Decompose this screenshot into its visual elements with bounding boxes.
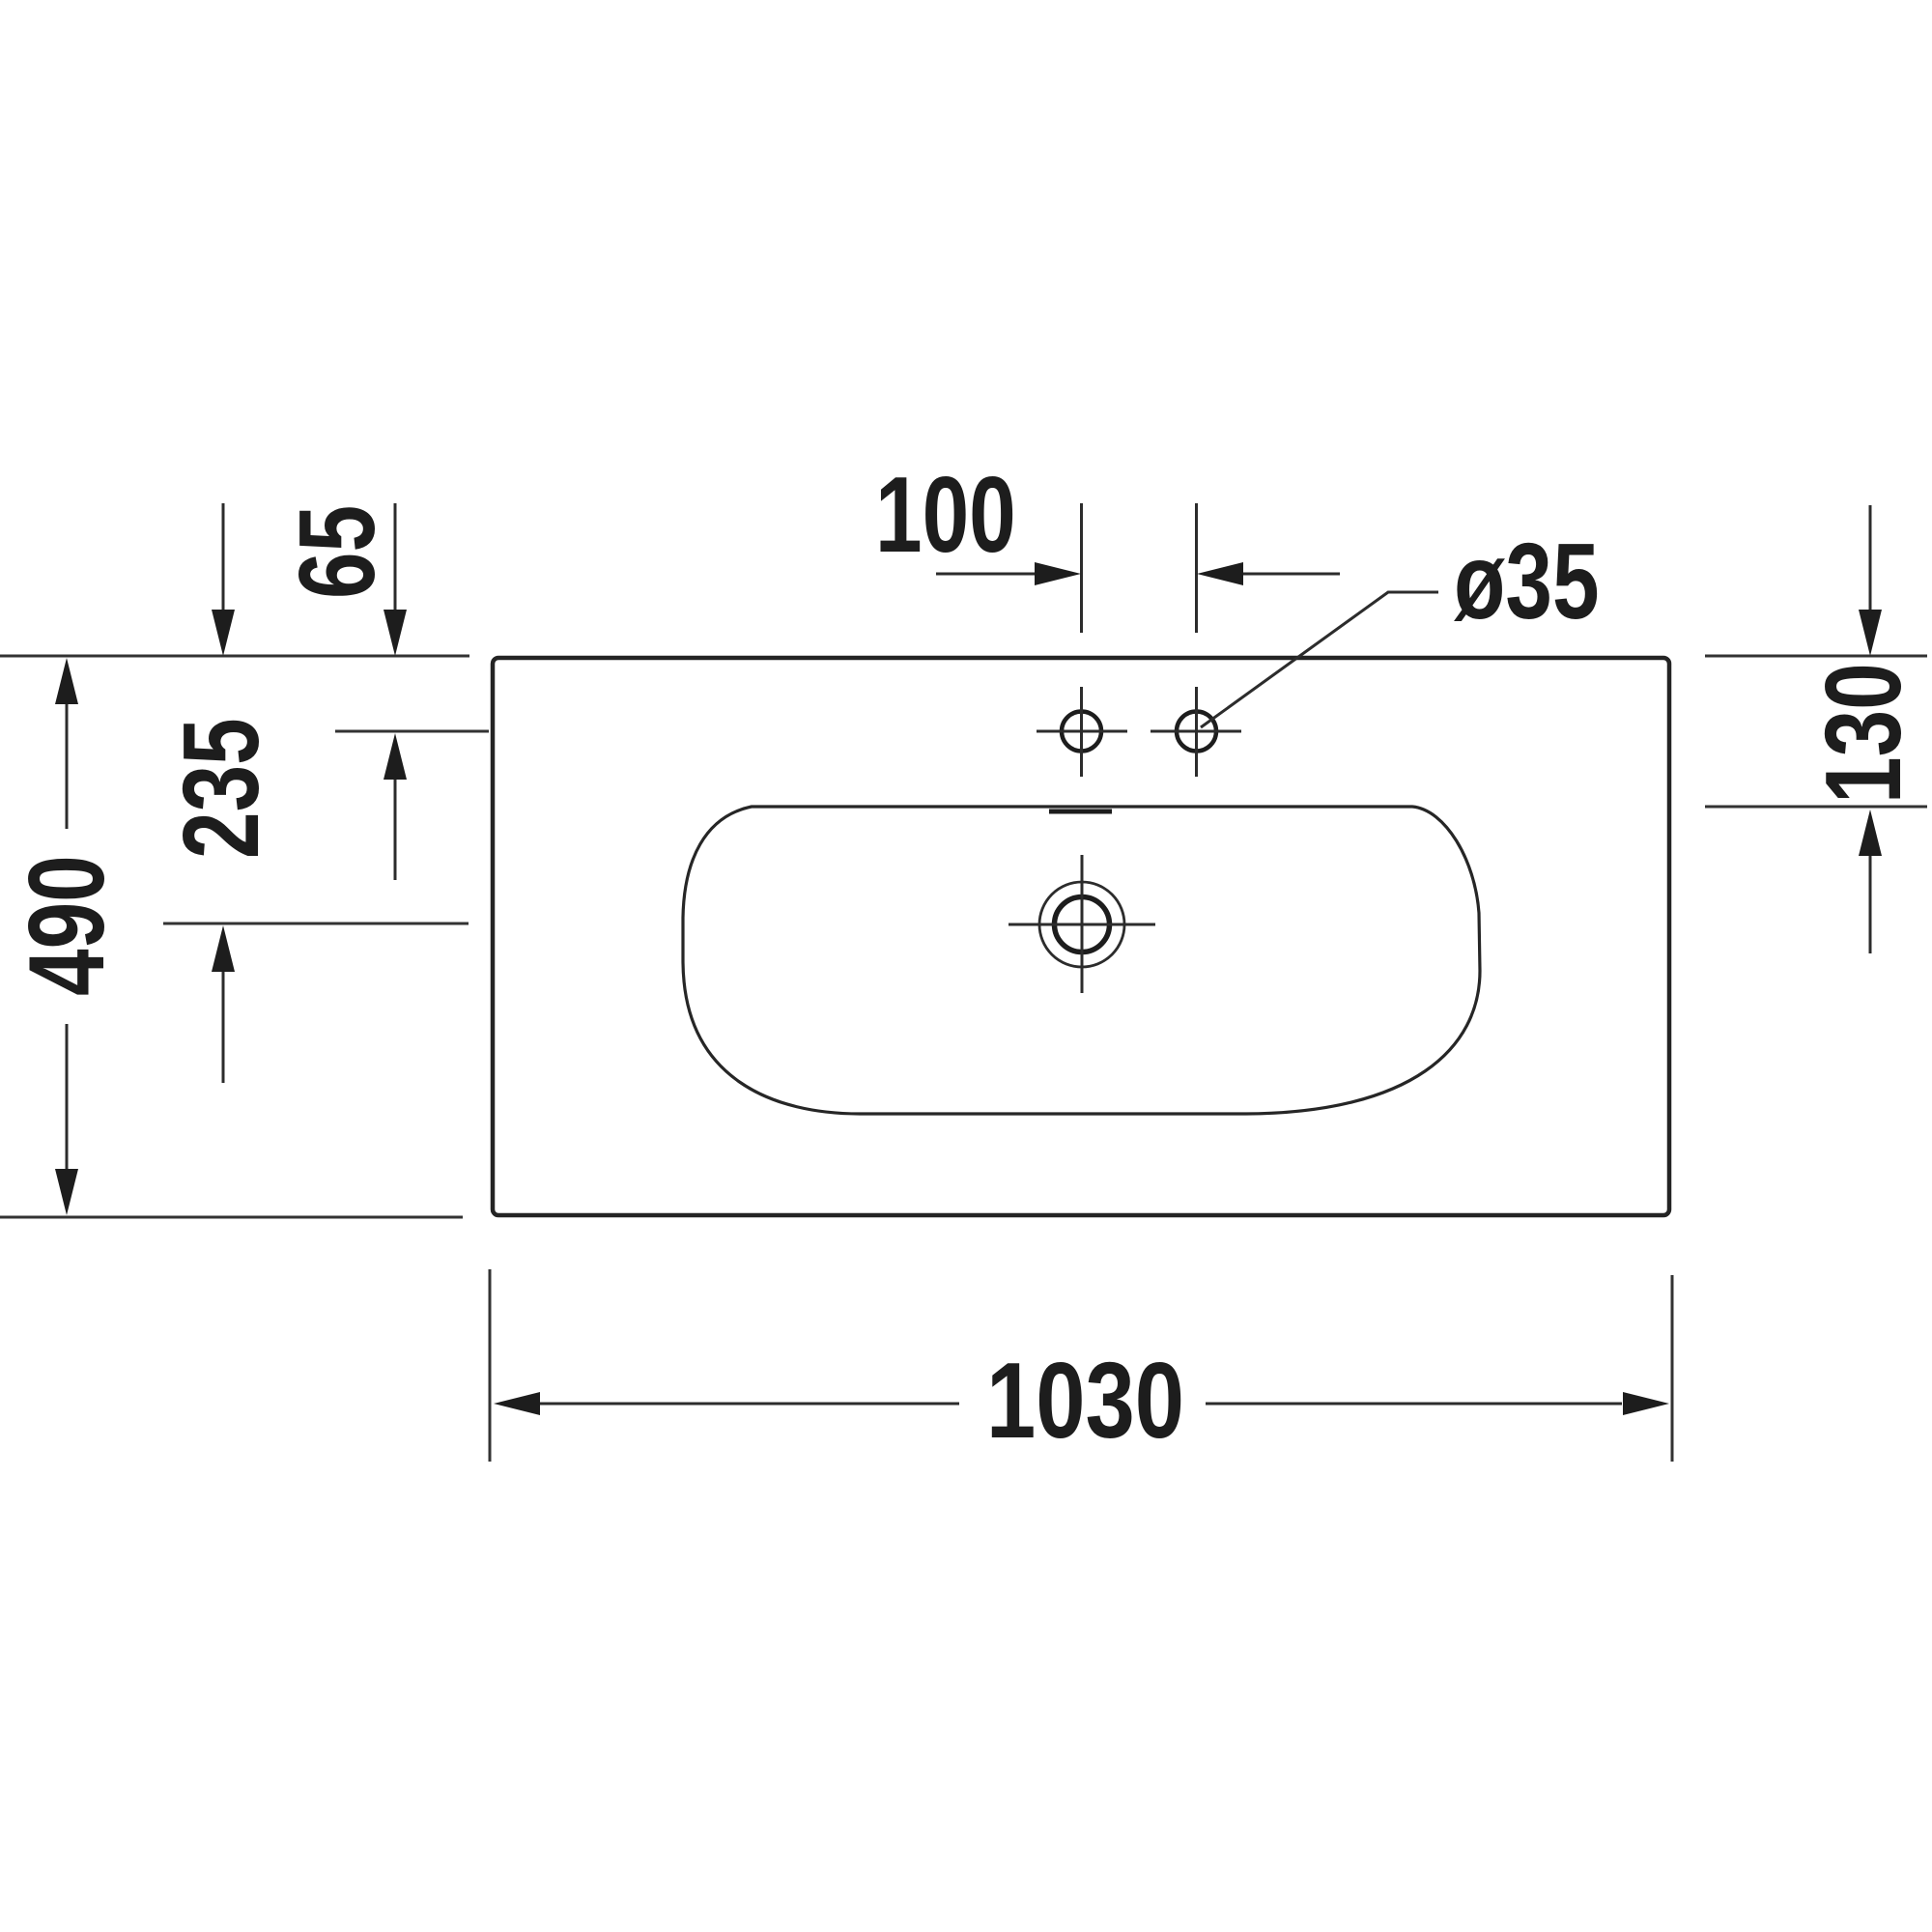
svg-text:490: 490 [8,855,127,996]
svg-text:65: 65 [278,505,397,599]
svg-text:100: 100 [875,456,1016,575]
svg-text:1030: 1030 [986,1341,1184,1461]
svg-text:235: 235 [162,718,281,859]
svg-text:130: 130 [1804,663,1923,804]
svg-text:ø35: ø35 [1454,523,1600,641]
